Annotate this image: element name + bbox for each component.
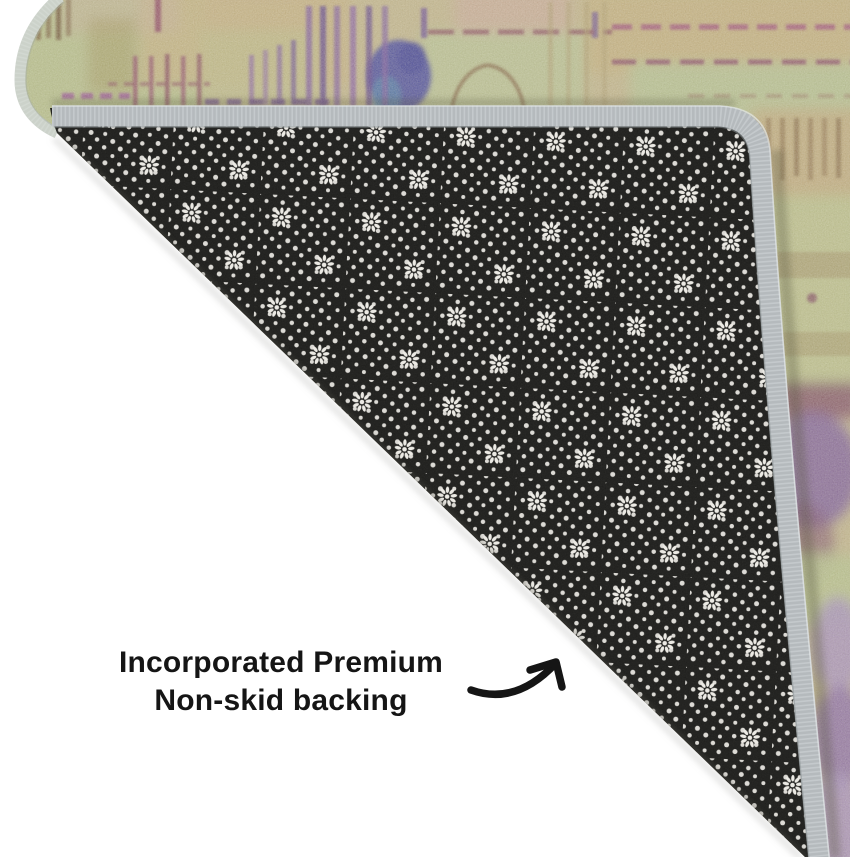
caption-line-2: Non-skid backing: [101, 682, 461, 720]
caption-line-1: Incorporated Premium: [101, 644, 461, 682]
caption: Incorporated Premium Non-skid backing: [101, 644, 461, 720]
product-photo: Incorporated Premium Non-skid backing: [0, 0, 850, 857]
rug-scene-svg: [0, 0, 850, 857]
